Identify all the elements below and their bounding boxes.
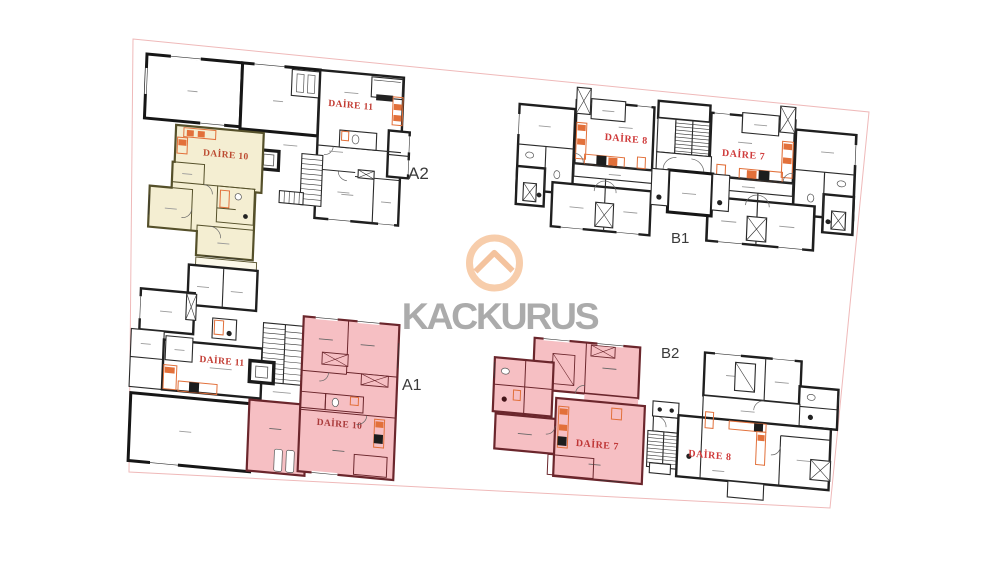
svg-text:B1: B1 <box>671 230 689 247</box>
svg-text:A2: A2 <box>408 164 429 183</box>
svg-text:B2: B2 <box>661 345 679 362</box>
svg-text:KACKURUS: KACKURUS <box>402 295 599 337</box>
svg-text:A1: A1 <box>402 377 422 394</box>
